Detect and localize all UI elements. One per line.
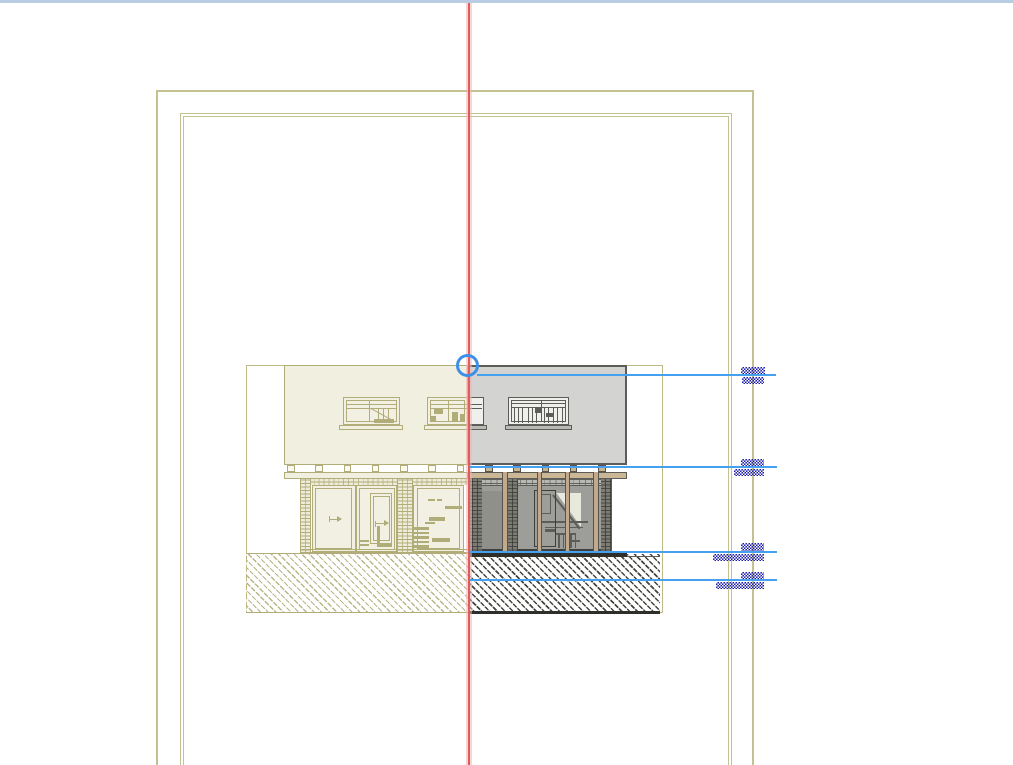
level-guides <box>0 0 1013 765</box>
level-marker-2-lower[interactable] <box>734 469 764 477</box>
level-marker-3-upper[interactable] <box>741 543 764 551</box>
level-marker-2-upper[interactable] <box>741 459 764 467</box>
level-guide-line-1[interactable] <box>477 374 776 376</box>
cad-viewport <box>0 0 1013 765</box>
level-marker-1-upper[interactable] <box>741 367 765 375</box>
level-marker-4-lower[interactable] <box>716 582 764 590</box>
level-marker-3-lower[interactable] <box>713 554 764 562</box>
level-marker-1-lower[interactable] <box>742 377 764 385</box>
level-guide-line-2[interactable] <box>470 466 777 468</box>
level-marker-4-upper[interactable] <box>741 572 764 580</box>
